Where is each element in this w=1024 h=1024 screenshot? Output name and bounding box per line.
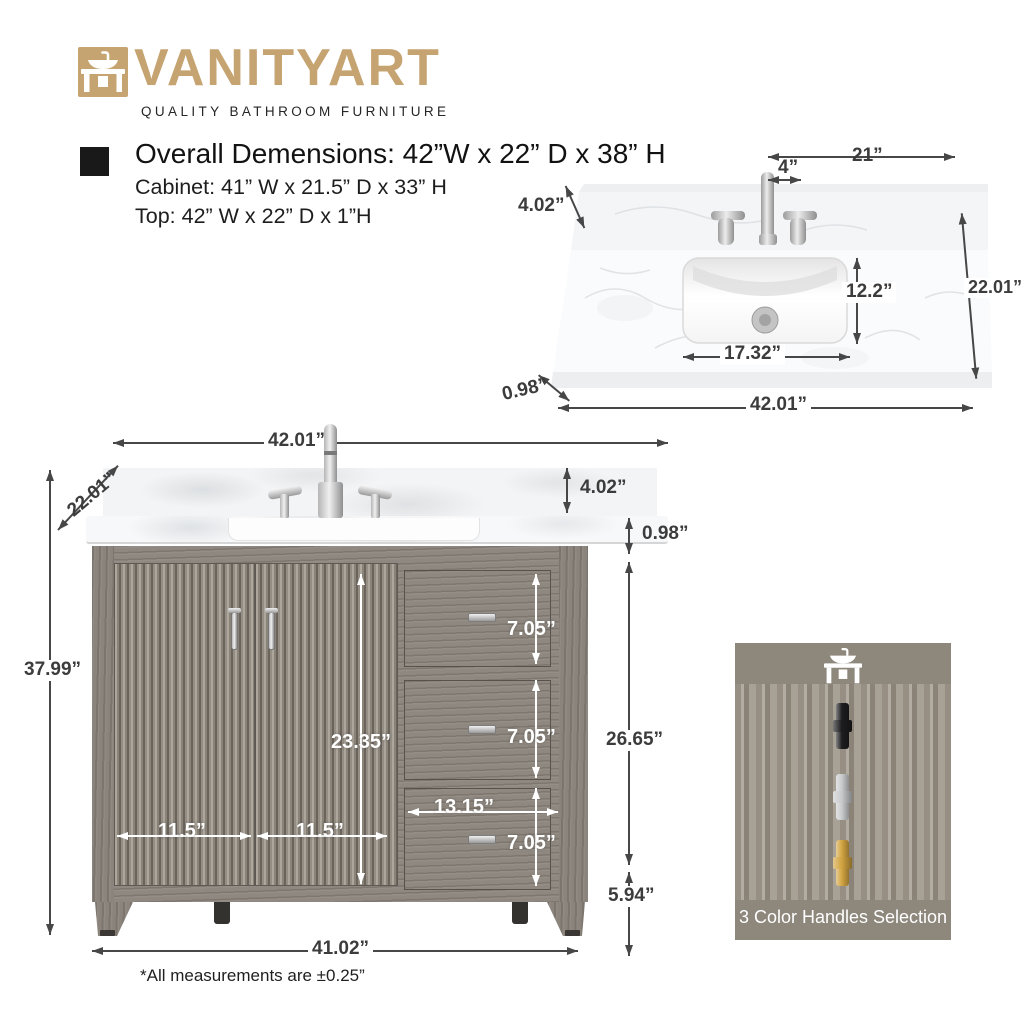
front-thickness-label: 0.98” [642, 524, 688, 545]
vanity-sink-icon [821, 647, 865, 685]
vanity-sink-icon [78, 50, 128, 94]
top-view-half-width-label: 21” [852, 146, 883, 167]
page: VANITYART QUALITY BATHROOM FURNITURE Ove… [0, 0, 1024, 1024]
drawer-width-label: 13.15” [434, 796, 494, 818]
brand-name: VANITYART [134, 38, 441, 98]
drawer-2-height-label: 7.05” [507, 726, 556, 748]
top-view-backsplash-height-label: 4.02” [518, 196, 564, 217]
black-handle-option [836, 703, 849, 749]
front-left-foot [100, 930, 115, 936]
front-backsplash-height-arrow [566, 468, 568, 513]
front-body-height-arrow [628, 562, 630, 865]
drawer-3-handle [468, 835, 496, 844]
faucet-front-view [266, 424, 394, 518]
gold-handle-option [836, 840, 849, 886]
right-door-width-label: 11.5” [296, 820, 344, 842]
handles-selection-panel: 3 Color Handles Selection [735, 643, 951, 940]
handles-panel-caption: 3 Color Handles Selection [735, 907, 951, 928]
front-thickness-arrow [628, 518, 630, 554]
front-base-width-label: 41.02” [308, 939, 373, 960]
top-view-faucet-offset-arrow [768, 179, 801, 181]
front-sink-rim [228, 518, 480, 541]
door-height-label: 23.35” [331, 731, 391, 753]
wood-swatch [735, 684, 951, 900]
top-view-sink-width-label: 17.32” [720, 344, 785, 365]
brand-logo [78, 47, 128, 97]
front-right-foot [565, 930, 580, 936]
door-height-arrow [360, 574, 362, 884]
front-overall-height-arrow [49, 470, 51, 935]
drawer-1-handle [468, 613, 496, 622]
right-door-handle-cap [265, 608, 278, 613]
chrome-handle-collar [833, 791, 852, 803]
black-handle-collar [833, 720, 852, 732]
front-backsplash-height-label: 4.02” [580, 478, 626, 499]
top-view-faucet-offset-label: 4” [778, 158, 798, 179]
backsplash-face [571, 192, 988, 250]
drawer-2-handle [468, 725, 496, 734]
cabinet-left-stile [92, 546, 114, 902]
top-view-depth-label: 22.01” [964, 278, 1024, 298]
rear-right-leg [512, 902, 528, 924]
right-door-handle [268, 612, 275, 650]
drawer-3-height-label: 7.05” [507, 832, 556, 854]
brand-tagline: QUALITY BATHROOM FURNITURE [141, 104, 449, 119]
left-door-width-label: 11.5” [158, 820, 206, 842]
rear-left-leg [214, 902, 230, 924]
front-leg-height-label: 5.94” [604, 886, 658, 907]
top-view-sink-depth-label: 12.2” [842, 282, 896, 303]
measurement-note: *All measurements are ±0.25” [140, 966, 365, 986]
drawer-1-height-label: 7.05” [507, 618, 556, 640]
gold-handle-collar [833, 857, 852, 869]
top-dimensions: Top: 42” W x 22” D x 1”H [135, 204, 372, 229]
left-door-handle [231, 612, 238, 650]
bullet-square [80, 147, 109, 176]
chrome-handle-option [836, 774, 849, 820]
cabinet-dimensions: Cabinet: 41” W x 21.5” D x 33” H [135, 175, 447, 200]
countertop-front-edge [551, 372, 992, 388]
left-door-handle-cap [228, 608, 241, 613]
cabinet-right-stile [559, 546, 588, 902]
backsplash-top-edge [579, 184, 988, 192]
top-view-overall-width-label: 42.01” [746, 395, 811, 416]
front-body-height-label: 26.65” [602, 730, 667, 751]
countertop-top-view [505, 148, 1024, 423]
front-overall-height-label: 37.99” [20, 660, 85, 681]
